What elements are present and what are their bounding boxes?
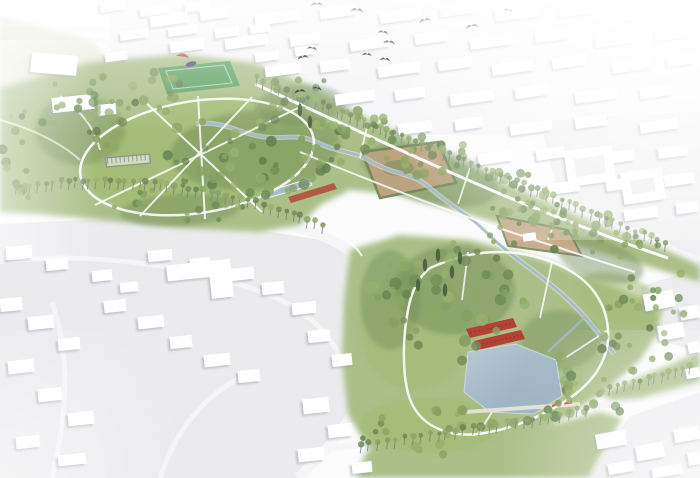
rendering-canvas (0, 0, 700, 478)
aerial-park-rendering (0, 0, 700, 478)
fade-overlays (0, 0, 700, 478)
veil (0, 0, 700, 478)
